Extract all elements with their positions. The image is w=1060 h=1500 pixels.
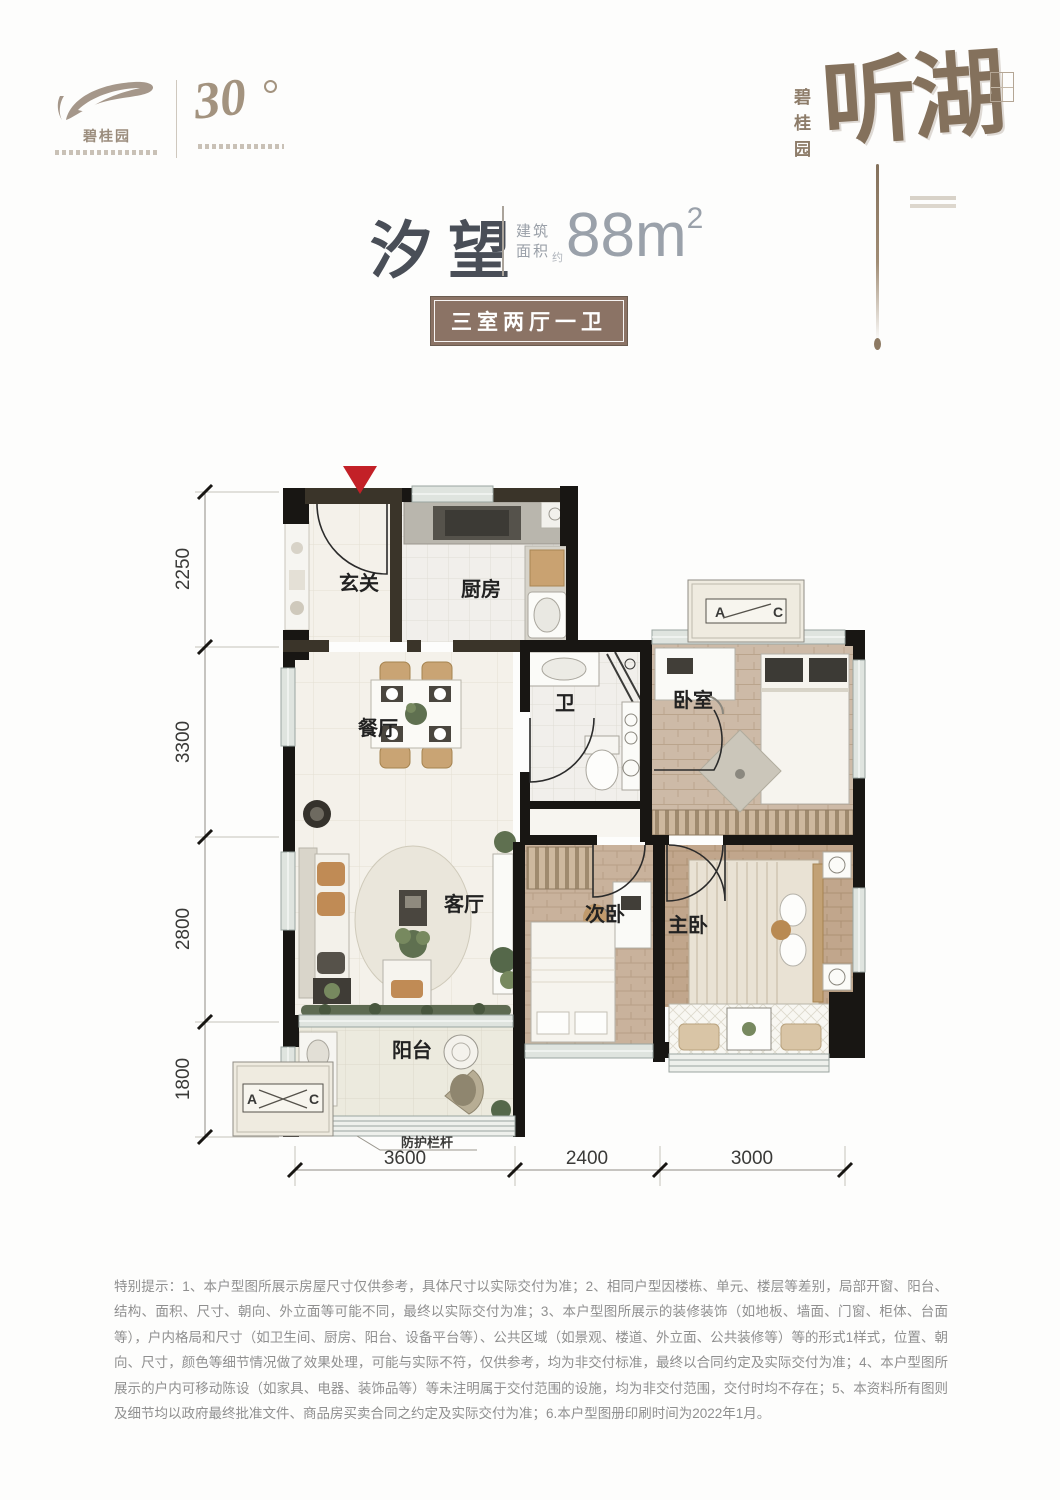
brand-name-vertical: 碧桂园 [788,88,813,166]
brand-name-left: 碧桂园 [83,128,131,144]
logo-divider [176,80,177,158]
room-label-master: 主卧 [668,913,708,937]
room-label-entry: 玄关 [339,571,379,595]
brochure-page: 碧桂园 30 碧桂园 听湖 汐望 建筑 面积 约 88m2 三室两厅一卫 [0,0,1060,1500]
ink-drip-stroke [876,164,879,342]
anniversary-ring-icon [264,80,277,93]
room-label-kitchen: 厨房 [461,577,501,601]
balcony-slider-door [299,1015,513,1027]
bedroom-right-window [853,660,865,778]
svg-text:A: A [247,1091,257,1107]
room-label-dining: 餐厅 [358,716,398,740]
brand-tagline-bar [55,150,159,155]
master-right-window [853,888,865,972]
svg-text:A: A [715,604,725,620]
room-label-bedroom: 卧室 [673,688,713,712]
svg-text:C: C [773,604,783,620]
floor-plan-drawing: A C A C 玄关 厨房 餐厅 卫 卧室 客厅 次卧 主卧 阳台 防护栏杆 [175,452,935,1194]
room-label-living: 客厅 [443,892,484,916]
project-name-calligraphy: 听湖 [819,46,1005,152]
project-logo: 碧桂园 听湖 [778,46,1040,326]
project-subtext-bar [910,196,956,200]
layout-badge: 三室两厅一卫 [430,296,628,346]
master-bay-window [669,1054,829,1072]
second-bedroom-window [525,1044,653,1058]
ac-platform-bottom: A C [233,1062,333,1136]
anniversary-30-mark: 30 [191,67,249,131]
area-label: 建筑 面积 [516,222,550,262]
seal-stamp-icon [990,72,1014,102]
dining-window [281,668,295,746]
svg-text:3000: 3000 [731,1148,773,1169]
room-label-balcony: 阳台 [392,1038,432,1062]
svg-text:2250: 2250 [175,548,194,590]
svg-text:1800: 1800 [175,1058,194,1100]
title-divider [502,206,504,276]
room-label-bath: 卫 [555,693,575,715]
area-value: 88m2 [566,200,703,271]
svg-text:3300: 3300 [175,721,194,763]
brand-logo-left: 碧桂园 30 [48,76,278,176]
master-bay-window-seat [669,1004,829,1054]
dining-side-table [303,800,331,828]
floor-plan: A C A C 玄关 厨房 餐厅 卫 卧室 客厅 次卧 主卧 阳台 防护栏杆 [175,452,935,1194]
layout-badge-label: 三室两厅一卫 [434,300,624,342]
svg-text:2400: 2400 [566,1148,608,1169]
disclaimer-text: 特别提示：1、本户型图所展示房屋尺寸仅供参考，具体尺寸以实际交付为准；2、相同户… [114,1274,948,1427]
svg-text:C: C [309,1091,319,1107]
phoenix-logo-icon [48,76,168,128]
svg-text:3600: 3600 [384,1148,426,1169]
ink-drip-dot [874,338,881,350]
area-approx: 约 [552,249,563,265]
anniversary-tagline-bar [198,144,284,149]
living-window [281,852,295,930]
room-label-second: 次卧 [585,902,625,926]
ac-platform-top: A C [688,580,804,642]
entry-cabinet [285,522,309,630]
kitchen-window [412,486,493,502]
svg-text:2800: 2800 [175,908,194,950]
